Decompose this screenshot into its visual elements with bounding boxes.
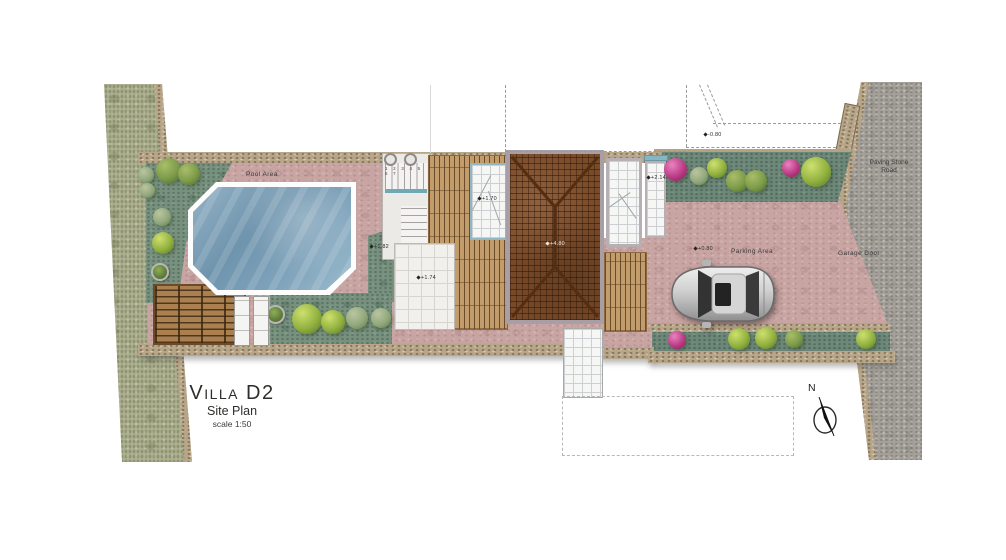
road-name-line2: Road [866,167,912,175]
elevation-marker: +4.80 [546,241,565,247]
skylight-roof-side [606,158,642,247]
title-block: Villa D2 Site Plan scale 1:50 [158,383,306,429]
boundary-dashed-line [505,85,506,152]
setback-dashed-rect [562,396,794,456]
sun-lounger [234,296,250,346]
garage-door-label: Garage Door [838,250,880,257]
column-dot-2 [404,153,417,166]
column-dot-1 [384,153,397,166]
wall-bottom-left [138,344,566,356]
tree [156,158,181,183]
road-name-line1: Paving Stone [866,159,912,167]
road-name-label: Paving Stone Road [866,159,912,174]
stairs-landing-beam [385,189,427,193]
side-panel [645,161,666,238]
parking-area-label: Parking Area [731,248,773,255]
boundary-dashed-line [713,123,851,124]
shrub [690,167,708,185]
shrub [152,232,174,254]
roof-tiles [510,154,600,320]
boundary-dashed-line [707,85,725,126]
faint-guide-line [430,85,431,153]
elevation-marker: +2.14 [647,175,666,181]
plan-scale: scale 1:50 [158,419,306,429]
shrub [138,167,154,183]
elevation-marker: +1.74 [417,275,436,281]
elevation-marker: +0.80 [694,246,713,252]
main-roof [506,150,604,324]
site-plan-canvas: 1 2 3 4 5 6 7 [0,0,1006,560]
boundary-dashed-line [686,85,687,147]
tree [292,304,322,334]
entrance-walkway [563,328,603,398]
shrub [856,329,876,349]
shrub [785,330,803,348]
tree [371,308,391,328]
flowering-shrub [782,159,800,177]
compass-needle-icon [798,380,848,440]
plan-title: Villa D2 [158,383,306,403]
shrub [140,183,155,198]
tree [801,157,831,187]
roof-ridge-lines [510,154,600,320]
wall-planting-bottom-edge [648,351,895,363]
elevation-marker: -0.80 [704,132,722,138]
tree [178,163,200,185]
sun-lounger [253,296,269,346]
pool-area-label: Pool Area [246,171,278,178]
shrub [707,158,727,178]
planter-pot [151,263,169,281]
tree [745,170,767,192]
pool-water [193,187,351,290]
tree [321,310,345,334]
stair-step-numbers: 1 2 3 4 5 6 7 [385,166,429,176]
boundary-dashed-line [505,151,686,152]
elevation-marker: +1.70 [478,196,497,202]
north-compass: N [798,380,848,440]
wall-bottom-mid [598,347,654,359]
boundary-dashed-line [686,147,836,148]
plan-subtitle: Site Plan [158,404,306,418]
swimming-pool [188,182,356,295]
courtyard-tiles [394,243,455,330]
shrub [153,208,171,226]
flowering-shrub [664,158,687,181]
elevation-marker: +1.82 [370,244,389,250]
flowering-shrub [668,331,686,349]
tree [346,307,368,329]
car [662,256,780,332]
wood-deck-parking-side [604,252,647,332]
